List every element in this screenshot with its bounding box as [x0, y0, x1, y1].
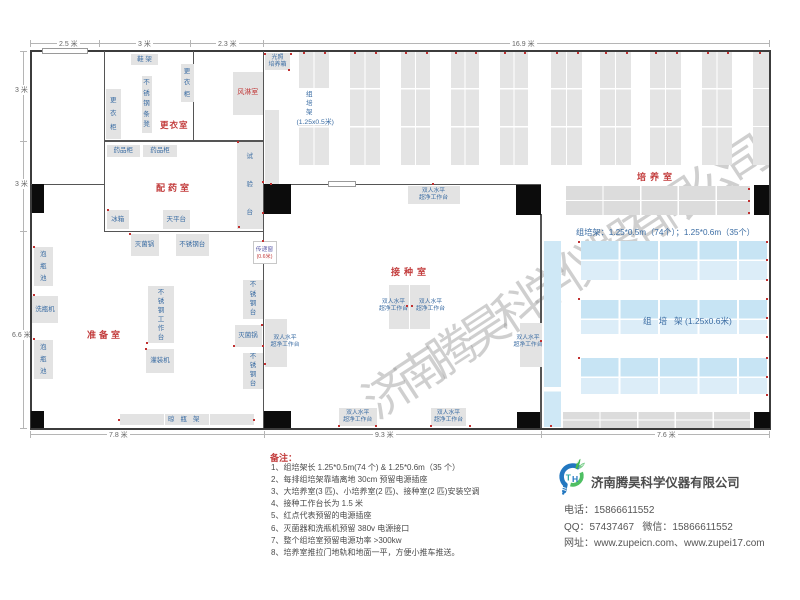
svg-text:H: H: [572, 474, 578, 484]
svg-text:T: T: [566, 473, 572, 483]
